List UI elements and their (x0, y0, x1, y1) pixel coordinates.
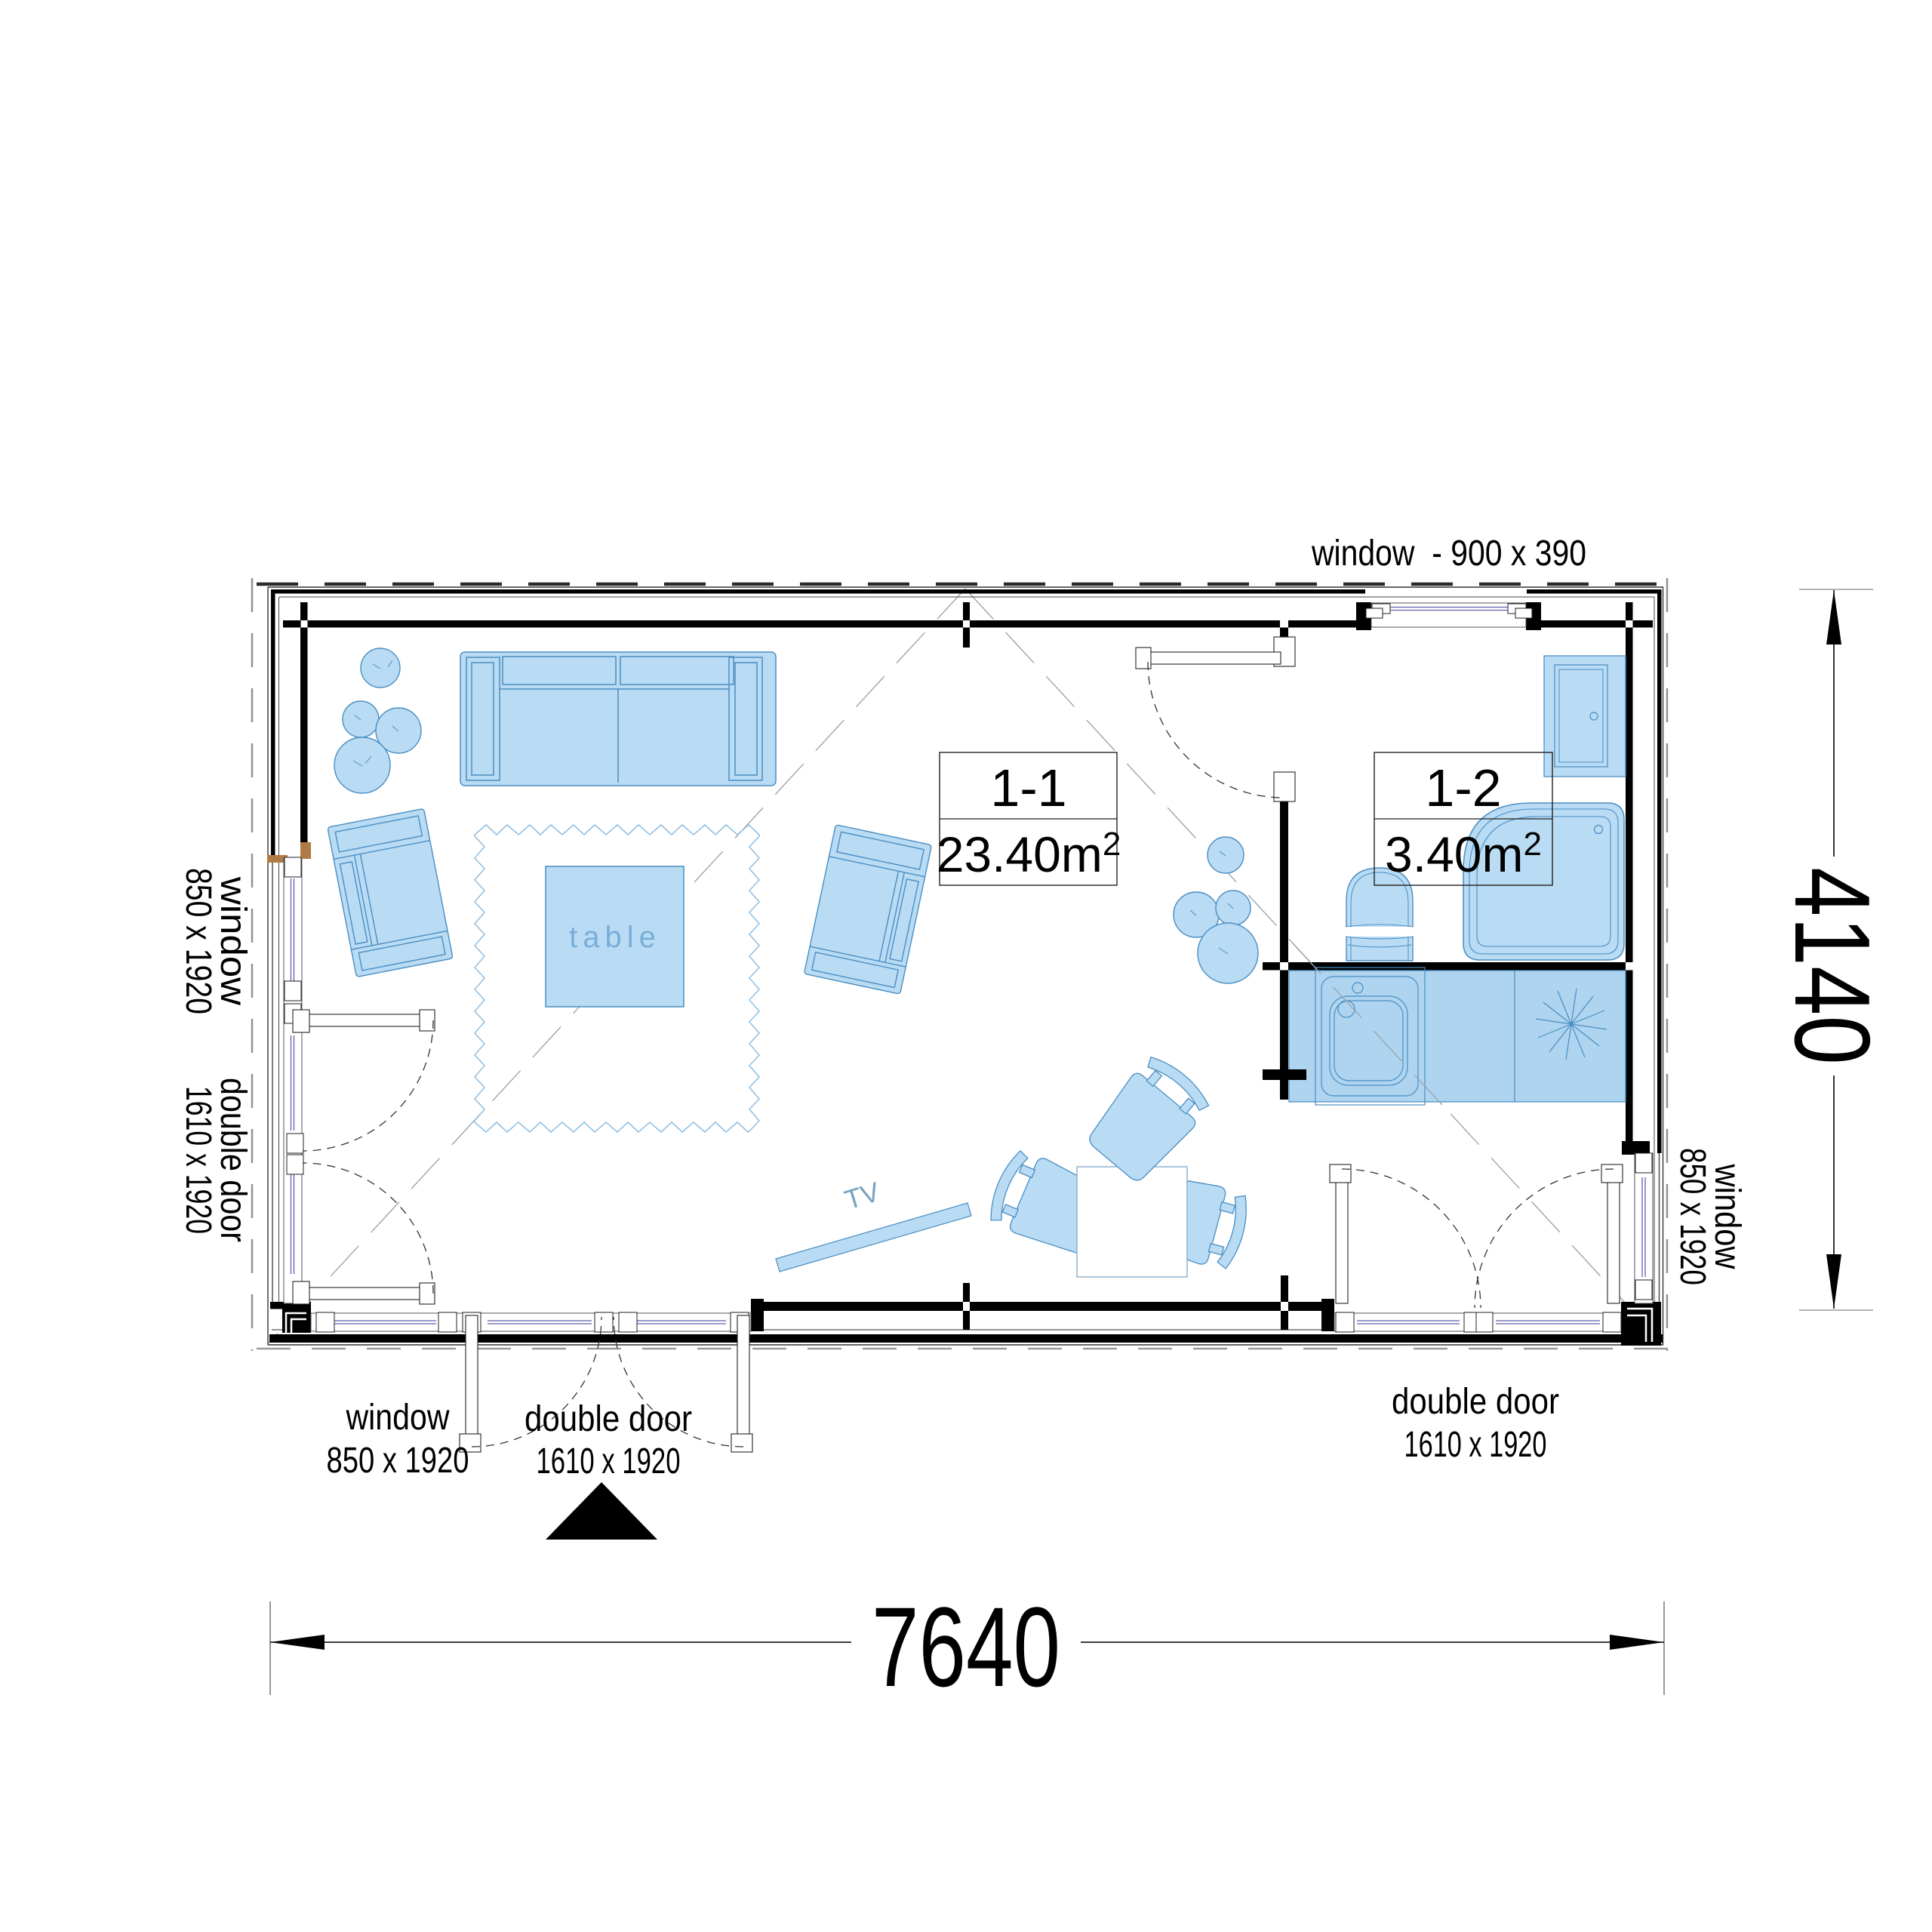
svg-text:1-1: 1-1 (990, 758, 1066, 817)
svg-text:23.40m2: 23.40m2 (937, 826, 1121, 882)
svg-text:double door: double door (525, 1399, 692, 1439)
svg-text:7640: 7640 (872, 1583, 1060, 1710)
svg-text:1610 x 1920: 1610 x 1920 (1404, 1425, 1547, 1465)
svg-text:3.40m2: 3.40m2 (1385, 826, 1542, 882)
svg-text:850 x 1920: 850 x 1920 (1672, 1148, 1712, 1285)
svg-text:double door: double door (1392, 1382, 1559, 1422)
svg-text:1-2: 1-2 (1425, 758, 1501, 817)
svg-text:1610 x 1920: 1610 x 1920 (178, 1086, 218, 1234)
svg-text:4140: 4140 (1772, 867, 1892, 1065)
svg-text:1610 x 1920: 1610 x 1920 (537, 1441, 681, 1481)
svg-text:window: window (346, 1398, 450, 1438)
svg-text:table: table (569, 921, 661, 954)
svg-text:850 x 1920: 850 x 1920 (327, 1441, 469, 1481)
svg-text:850 x 1920: 850 x 1920 (178, 868, 218, 1014)
svg-text:window - 900 x 390: window - 900 x 390 (1311, 534, 1586, 574)
